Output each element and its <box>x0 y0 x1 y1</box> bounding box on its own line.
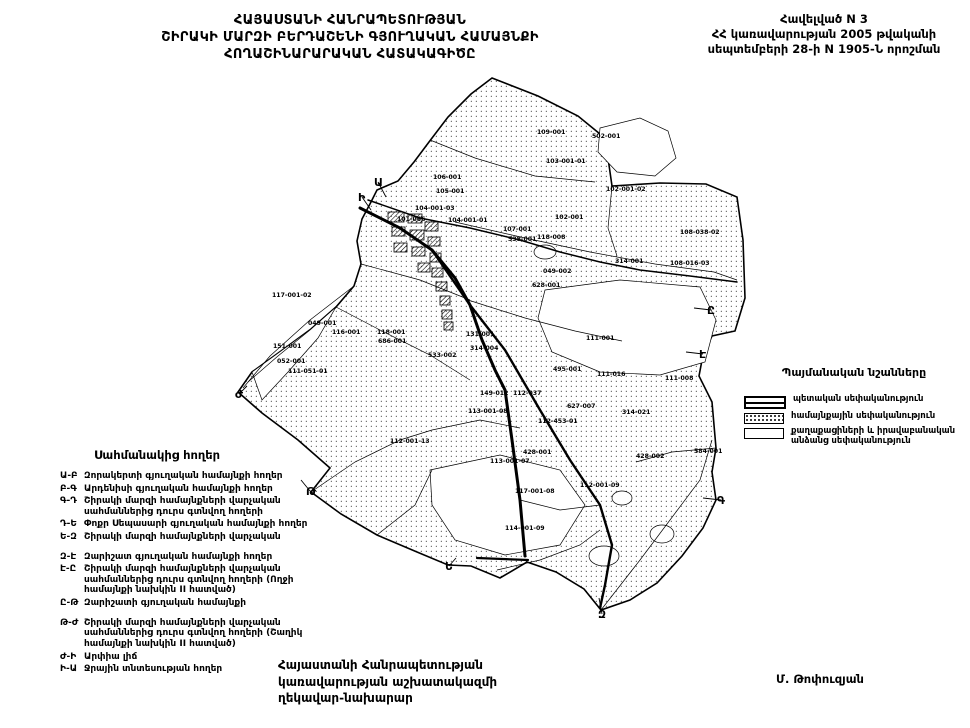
legend-swatch-private <box>744 428 784 439</box>
parcel-code-label: 149-012 <box>480 390 508 397</box>
parcel-code-label: 538-001 <box>508 236 536 243</box>
boundary-letter: Ը <box>707 304 715 317</box>
parcel-code-label: 111-001 <box>586 335 614 342</box>
signature: Մ. Թոփուզյան <box>776 672 864 686</box>
parcel-code-label: 314-004 <box>470 345 499 352</box>
parcel-code-label: 131-001 <box>466 331 494 338</box>
legend-rows: պետական սեփականությունհամայնքային սեփակա… <box>744 395 964 447</box>
border-land-text: Զարիշատ գյուղական համայնքի հողեր <box>84 552 314 563</box>
border-lands: Սահմանակից հողեր Ա-ԲԶորակերտի գյուղական … <box>60 448 314 677</box>
parcel-code-label: 118-008 <box>537 234 565 241</box>
boundary-letter: Ե <box>445 560 453 573</box>
border-land-item: Զ-ԷԶարիշատ գյուղական համայնքի հողեր <box>60 552 314 563</box>
legend-item: համայնքային սեփականություն <box>744 412 964 424</box>
parcel-code-label: 111-051-01 <box>288 368 328 375</box>
parcel-code-label: 109-001 <box>537 129 565 136</box>
parcel-code-label: 495-001 <box>553 366 581 373</box>
border-land-code: Ժ-Ի <box>60 652 84 663</box>
annex-line: սեպտեմբերի 28-ի N 1905-Ն որոշման <box>686 42 962 57</box>
border-land-code: Ե-Զ <box>60 532 84 543</box>
parcel-code-label: 112-001-09 <box>580 482 620 489</box>
approval-line: Հայաստանի Հանրապետության <box>278 657 497 674</box>
parcel-code-label: 112-037 <box>513 390 541 397</box>
parcel-code-label: 111-016 <box>597 371 625 378</box>
parcel-code-label: 113-001-07 <box>490 458 530 465</box>
legend-item: պետական սեփականություն <box>744 395 964 409</box>
parcel-code-label: 533-002 <box>428 352 456 359</box>
border-land-code: Զ-Է <box>60 552 84 563</box>
legend-label: պետական սեփականություն <box>793 395 964 405</box>
border-land-text: Փոքր Սեպասարի գյուղական համայնքի հողեր <box>84 519 314 530</box>
border-land-item: Ա-ԲԶորակերտի գյուղական համայնքի հողեր <box>60 471 314 482</box>
parcel-code-label: 116-001 <box>332 329 360 336</box>
border-land-text: Շիրակի մարզի համայնքների վարչական սահման… <box>84 564 314 596</box>
border-land-text: Շիրակի մարզի համայնքների վարչական <box>84 532 314 543</box>
boundary-letter: Ժ <box>235 388 244 401</box>
map-title-line: ՇԻՐԱԿԻ ՄԱՐԶԻ ԲԵՐԴԱՇԵՆԻ ԳՅՈՒՂԱԿԱՆ ՀԱՄԱՅՆՔ… <box>138 29 562 46</box>
parcel-code-label: 106-001 <box>433 174 461 181</box>
approval-block: Հայաստանի Հանրապետության կառավարության ա… <box>278 657 497 707</box>
boundary-letter: Գ <box>717 494 726 507</box>
parcel-code-label: 104-001-03 <box>415 205 455 212</box>
border-land-item: Բ-ԳԱրդենիսի գյուղական համայնքի հողեր <box>60 484 314 495</box>
parcel-code-label: 102-001-02 <box>606 186 646 193</box>
parcel-code-label: 108-038-02 <box>680 229 720 236</box>
parcel-code-label: 628-001 <box>532 282 560 289</box>
border-land-item: Ի-ԱՋրային տնտեսության հողեր <box>60 664 314 675</box>
border-land-item: Ժ-ԻԱրփիա լիճ <box>60 652 314 663</box>
map-title-line: ՀՈՂԱՇԻՆԱՐԱՐԱԿԱՆ ՀԱՏԱԿԱԳԻԾԸ <box>138 46 562 63</box>
legend-title: Պայմանական նշանները <box>744 366 964 379</box>
border-lands-title: Սահմանակից հողեր <box>94 448 314 462</box>
parcel-code-label: 113-001-08 <box>468 408 508 415</box>
parcel-code-label: 111-008 <box>665 375 693 382</box>
parcel-code-label: 049-001 <box>308 320 336 327</box>
parcel-code-label: 112-001-13 <box>390 438 430 445</box>
border-land-text: Զարիշատի գյուղական համայնքի <box>84 598 314 609</box>
parcel-code-label: 151-001 <box>273 343 301 350</box>
border-land-item: Դ-ԵՓոքր Սեպասարի գյուղական համայնքի հողե… <box>60 519 314 530</box>
annex-line: ՀՀ կառավարության 2005 թվականի <box>686 27 962 42</box>
parcel-code-label: 314-001 <box>615 258 643 265</box>
boundary-letter: Ի <box>358 191 366 204</box>
boundary-letter: Ա <box>374 176 383 189</box>
parcel-code-label: 052-001 <box>277 358 305 365</box>
parcel-code-label: 627-007 <box>567 403 595 410</box>
annex-note: Հավելված N 3 ՀՀ կառավարության 2005 թվակա… <box>686 12 962 58</box>
parcel-code-label: 112-453-01 <box>538 418 578 425</box>
border-land-item: Ե-ԶՇիրակի մարզի համայնքների վարչական <box>60 532 314 543</box>
legend-swatch-community <box>744 413 784 424</box>
border-land-item: Ը-ԹԶարիշատի գյուղական համայնքի <box>60 598 314 609</box>
parcel-code-label: 105-001 <box>436 188 464 195</box>
parcel-code-label: 502-001 <box>592 133 620 140</box>
parcel-code-label: 314-021 <box>622 409 650 416</box>
border-land-text: Շիրակի մարզի համայնքների վարչական սահման… <box>84 496 314 517</box>
parcel-code-label: 117-001-02 <box>272 292 312 299</box>
legend-item: քաղաքացիների և իրավաբանական անձանց սեփակ… <box>744 427 964 447</box>
legend-label: համայնքային սեփականություն <box>791 412 964 422</box>
parcel-code-label: 103-001-01 <box>546 158 586 165</box>
border-land-text: Զորակերտի գյուղական համայնքի հողեր <box>84 471 314 482</box>
legend: Պայմանական նշանները պետական սեփականությո… <box>744 366 964 450</box>
parcel-code-label: 114-001-09 <box>505 525 545 532</box>
parcel-code-label: 101-066 <box>397 216 425 223</box>
approval-line: ղեկավար-նախարար <box>278 690 497 707</box>
boundary-letter: Զ <box>598 608 606 621</box>
map-title-line: ՀԱՅԱՍՏԱՆԻ ՀԱՆՐԱՊԵՏՈՒԹՅԱՆ <box>138 12 562 29</box>
parcel-code-label: 584-001 <box>694 448 722 455</box>
parcel-code-label: 117-001-08 <box>515 488 555 495</box>
parcel-code-label: 108-016-03 <box>670 260 710 267</box>
legend-label: քաղաքացիների և իրավաբանական անձանց սեփակ… <box>791 427 964 447</box>
border-land-code: Ա-Բ <box>60 471 84 482</box>
parcel-code-label: 428-001 <box>523 449 551 456</box>
border-land-code: Թ-Ժ <box>60 618 84 650</box>
border-lands-list: Ա-ԲԶորակերտի գյուղական համայնքի հողերԲ-Գ… <box>60 471 314 675</box>
parcel-code-label: 118-001 <box>377 329 405 336</box>
parcel-code-label: 102-001 <box>555 214 583 221</box>
map-title: ՀԱՅԱՍՏԱՆԻ ՀԱՆՐԱՊԵՏՈՒԹՅԱՆ ՇԻՐԱԿԻ ՄԱՐԶԻ ԲԵ… <box>138 12 562 63</box>
boundary-letter: Է <box>699 348 706 361</box>
annex-line: Հավելված N 3 <box>686 12 962 27</box>
parcel-code-label: 049-002 <box>543 268 571 275</box>
border-land-code: Դ-Ե <box>60 519 84 530</box>
parcel-code-label: 428-002 <box>636 453 664 460</box>
border-land-item: Գ-ԴՇիրակի մարզի համայնքների վարչական սահ… <box>60 496 314 517</box>
border-land-code: Ը-Թ <box>60 598 84 609</box>
border-land-code: Բ-Գ <box>60 484 84 495</box>
border-land-item: Է-ԸՇիրակի մարզի համայնքների վարչական սահ… <box>60 564 314 596</box>
border-land-item: Թ-ԺՇիրակի մարզի համայնքների վարչական սահ… <box>60 618 314 650</box>
legend-swatch-state <box>744 396 786 409</box>
parcel-code-label: 107-001 <box>503 226 531 233</box>
parcel-code-label: 104-001-01 <box>448 217 488 224</box>
parcel-code-label: 686-001 <box>378 338 406 345</box>
border-land-text: Արդենիսի գյուղական համայնքի հողեր <box>84 484 314 495</box>
border-land-text: Շիրակի մարզի համայնքների վարչական սահման… <box>84 618 314 650</box>
border-land-code: Գ-Դ <box>60 496 84 517</box>
border-land-code: Է-Ը <box>60 564 84 596</box>
border-land-code: Ի-Ա <box>60 664 84 675</box>
approval-line: կառավարության աշխատակազմի <box>278 674 497 691</box>
